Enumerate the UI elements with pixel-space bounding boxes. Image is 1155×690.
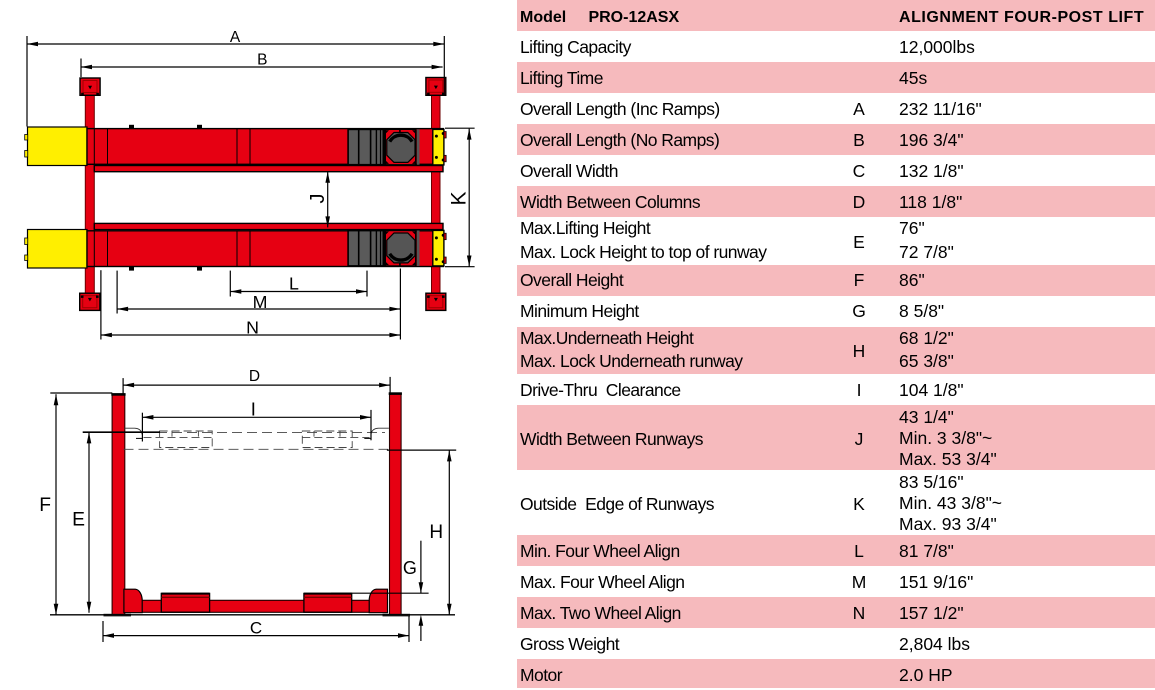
svg-text:M: M <box>253 292 268 312</box>
svg-text:G: G <box>403 558 417 578</box>
svg-text:E: E <box>72 510 85 531</box>
svg-text:K: K <box>448 191 471 205</box>
svg-text:L: L <box>289 274 299 294</box>
svg-text:I: I <box>251 398 256 419</box>
svg-text:C: C <box>250 619 262 638</box>
svg-text:D: D <box>249 368 260 385</box>
svg-text:N: N <box>246 318 259 338</box>
svg-text:B: B <box>257 51 267 68</box>
svg-text:F: F <box>39 495 51 516</box>
svg-text:H: H <box>429 522 443 543</box>
svg-text:J: J <box>307 194 329 204</box>
svg-text:A: A <box>230 29 241 46</box>
